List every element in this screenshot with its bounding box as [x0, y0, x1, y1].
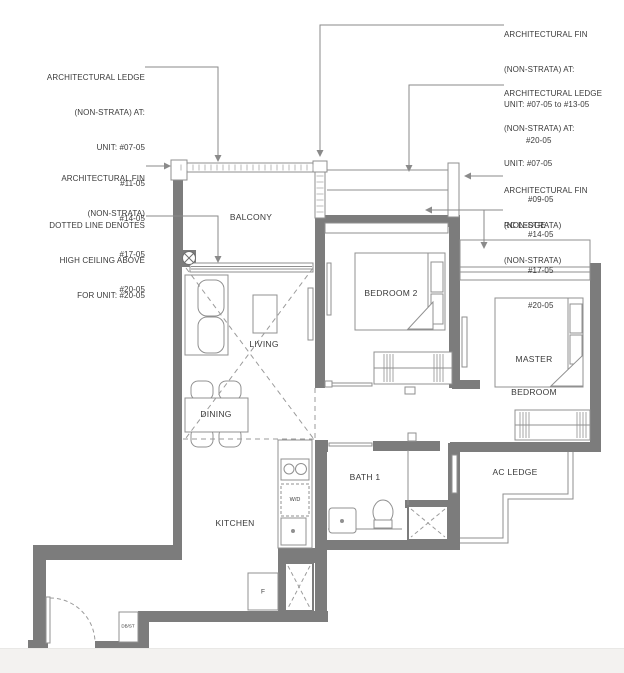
leader-arch-ledge-left — [145, 67, 218, 156]
wall-master-entry-stub — [452, 380, 480, 389]
entry-door-swing-arc — [50, 598, 95, 642]
ac-ledge-outline — [460, 452, 573, 543]
arch-ledge-edge-strip — [315, 172, 325, 218]
annotation-dotted-note: DOTTED LINE DENOTES HIGH CEILING ABOVE F… — [20, 196, 145, 326]
floor-plan-page: ARCHITECTURAL LEDGE (NON-STRATA) AT: UNI… — [0, 0, 624, 673]
fixture-label-washer-dryer: W/D — [290, 497, 301, 503]
dining-chair-1 — [191, 381, 213, 400]
annotation-line: ARCHITECTURAL FIN — [504, 185, 588, 197]
annotation-line: ARCHITECTURAL FIN — [20, 173, 145, 185]
sofa-cushion-1 — [198, 280, 224, 316]
room-label-dining: DINING — [200, 409, 231, 419]
annotation-line: ARCHITECTURAL FIN — [504, 29, 589, 41]
wall-living-bedroom2 — [315, 218, 325, 388]
wall-master-bottom — [450, 442, 601, 452]
annotation-line: RC LEDGE — [504, 220, 561, 232]
coffee-table — [253, 295, 277, 333]
annotation-line: (NON-STRATA) AT: — [20, 107, 145, 119]
bedroom2-door-line — [329, 383, 372, 386]
room-label-ac-ledge: AC LEDGE — [493, 467, 538, 477]
kitchen-sink-drain — [292, 530, 295, 533]
annotation-rc-ledge: RC LEDGE (NON-STRATA) — [504, 196, 561, 290]
arrow-down-icon — [406, 165, 413, 172]
room-label-bath1: BATH 1 — [350, 472, 381, 482]
door-jamb-mark-c — [408, 433, 416, 441]
wall-kitchen-bottom — [138, 611, 328, 622]
wall-bath-top — [373, 441, 440, 451]
arch-fin-left-square — [171, 160, 187, 180]
bedroom2-pillow-1 — [431, 262, 443, 292]
arrow-down-icon — [215, 256, 222, 263]
wall-kitchen-bath — [315, 440, 327, 622]
leader-arch-ledge-right — [409, 85, 504, 166]
annotation-line: ARCHITECTURAL LEDGE — [504, 88, 602, 100]
annotation-line: FOR UNIT: #20-05 — [20, 290, 145, 302]
room-label-living: LIVING — [249, 339, 278, 349]
arrow-down-icon — [215, 155, 222, 162]
room-label-kitchen: KITCHEN — [215, 518, 254, 528]
fixture-label-fridge: F — [261, 589, 265, 596]
wall-kitchen-shaft-top — [278, 548, 327, 563]
dining-chair-2 — [219, 381, 241, 400]
bath-sink-drain — [341, 520, 344, 523]
fixture-label-db-store: DB/ST — [121, 624, 134, 629]
annotation-line: (NON-STRATA) AT: — [504, 123, 602, 135]
arrow-down-icon — [317, 150, 324, 157]
entry-door-leaf — [46, 597, 50, 643]
room-label-bedroom2: BEDROOM 2 — [364, 288, 417, 298]
bath-door-line — [329, 443, 372, 446]
door-jamb-mark-a — [325, 381, 332, 387]
arrow-left-icon — [425, 207, 432, 214]
wall-kitchen-shaft-left — [278, 563, 285, 612]
living-wall-panel — [308, 288, 313, 340]
rwdp-symbol — [183, 252, 196, 265]
annotation-line: HIGH CEILING ABOVE — [20, 255, 145, 267]
master-door-leaf — [462, 317, 467, 367]
arch-fin-balcony-right-square — [313, 161, 327, 172]
leader-arch-fin-top-right — [320, 25, 504, 151]
annotation-line: ARCHITECTURAL LEDGE — [20, 72, 145, 84]
arrow-left-icon — [464, 173, 471, 180]
bedroom2-wall-panel — [327, 263, 331, 315]
bedroom2-rc-ledge-lines — [327, 170, 448, 190]
wall-balcony-left — [173, 170, 183, 252]
cooktop-burner-1 — [284, 464, 294, 474]
sofa-cushion-2 — [198, 317, 224, 353]
arrow-right-icon — [164, 163, 171, 170]
wall-bedroom2-top — [315, 215, 448, 223]
page-footer-strip — [0, 648, 624, 673]
bedroom2-window-band — [325, 223, 448, 233]
wall-bath-bottom — [315, 540, 460, 550]
door-jamb-mark-b — [405, 387, 415, 394]
annotation-line: DOTTED LINE DENOTES — [20, 220, 145, 232]
arch-fin-right-strip — [448, 163, 459, 217]
wall-bath-top-left — [315, 440, 328, 452]
wall-entry-left — [33, 558, 46, 648]
balcony-sliding-door — [190, 263, 313, 272]
annotation-line: #20-05 — [504, 300, 602, 312]
room-label-master-bedroom: MASTER BEDROOM — [511, 332, 557, 420]
wall-kitchen-upper-left — [33, 545, 182, 560]
wall-living-left — [173, 267, 182, 552]
annotation-line: (NON-STRATA) — [504, 255, 561, 267]
room-label-balcony: BALCONY — [230, 212, 272, 222]
toilet-base — [374, 520, 392, 528]
bath-window — [452, 455, 457, 493]
cooktop-burner-2 — [296, 464, 307, 475]
